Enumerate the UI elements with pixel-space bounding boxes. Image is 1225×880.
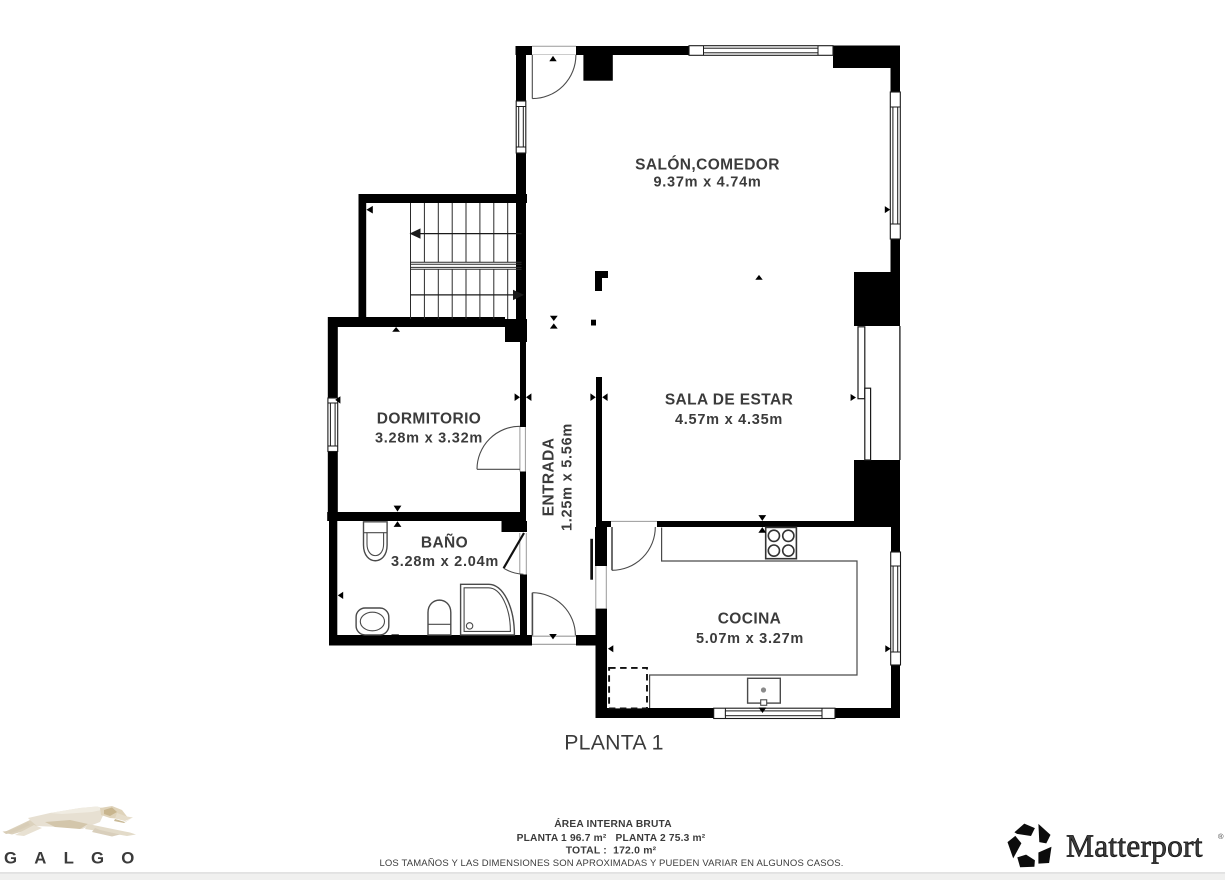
svg-text:Matterport: Matterport: [1066, 829, 1203, 864]
svg-text:3.28m x 2.04m: 3.28m x 2.04m: [391, 554, 499, 570]
svg-text:DORMITORIO: DORMITORIO: [377, 410, 481, 427]
svg-text:COCINA: COCINA: [718, 611, 782, 628]
svg-text:1.25m x 5.56m: 1.25m x 5.56m: [560, 423, 576, 531]
svg-text:PLANTA 1 96.7 m² PLANTA 2 75: PLANTA 1 96.7 m² PLANTA 2 75.3 m²: [517, 833, 706, 844]
svg-text:ÁREA INTERNA BRUTA: ÁREA INTERNA BRUTA: [554, 817, 672, 830]
svg-text:SALA DE ESTAR: SALA DE ESTAR: [665, 392, 793, 409]
svg-text:ENTRADA: ENTRADA: [541, 438, 558, 517]
svg-text:4.57m x 4.35m: 4.57m x 4.35m: [675, 412, 783, 428]
svg-text:9.37m x 4.74m: 9.37m x 4.74m: [653, 175, 761, 191]
svg-text:5.07m x 3.27m: 5.07m x 3.27m: [696, 631, 804, 647]
svg-text:®: ®: [1218, 832, 1224, 841]
svg-text:TOTAL : 172.0 m²: TOTAL : 172.0 m²: [566, 845, 657, 856]
svg-text:SALÓN,COMEDOR: SALÓN,COMEDOR: [635, 156, 780, 174]
svg-text:LOS TAMAÑOS Y LAS DIMENSIONES: LOS TAMAÑOS Y LAS DIMENSIONES SON APROXI…: [379, 858, 843, 869]
svg-text:GALGO: GALGO: [4, 849, 152, 868]
svg-text:BAÑO: BAÑO: [421, 534, 468, 552]
svg-text:3.28m x 3.32m: 3.28m x 3.32m: [375, 431, 483, 447]
svg-text:PLANTA 1: PLANTA 1: [564, 730, 663, 754]
